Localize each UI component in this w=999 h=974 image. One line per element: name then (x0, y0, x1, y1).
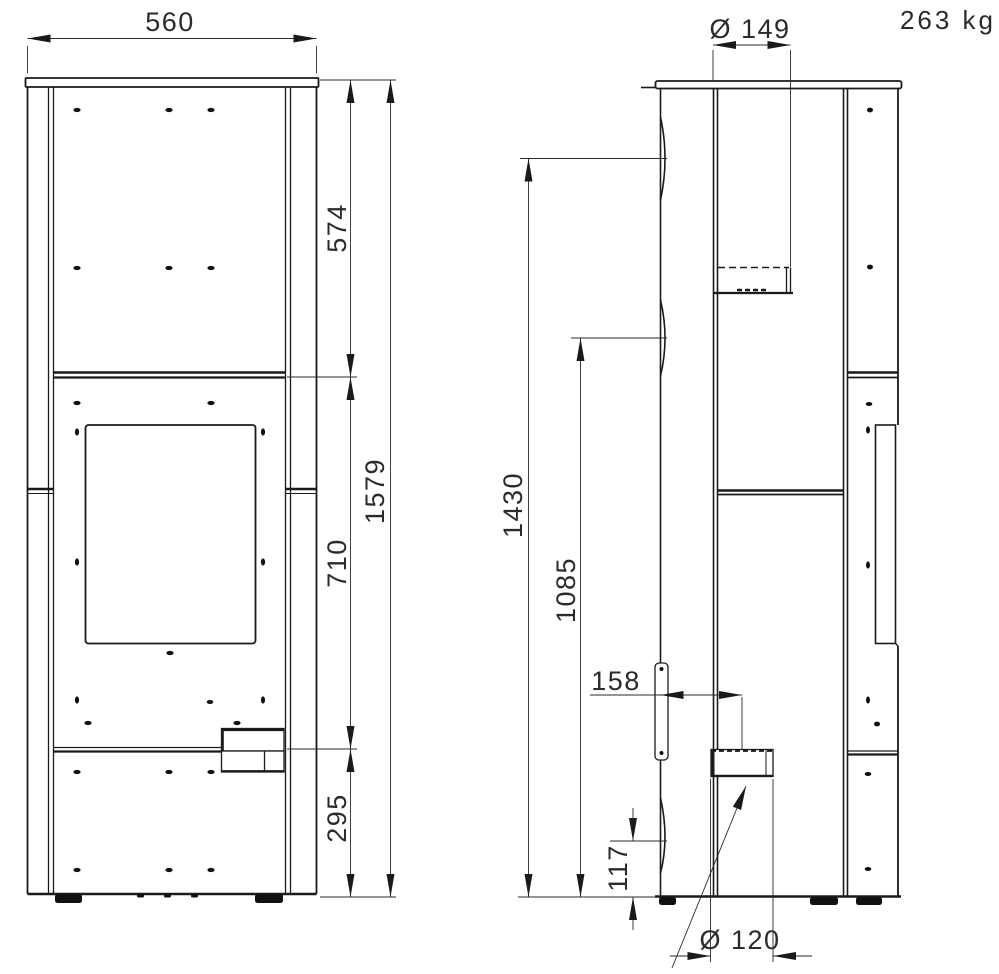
air-inlet-spigot (711, 750, 773, 777)
dim-air-inlet-height-117: 117 (603, 808, 667, 930)
front-top-plate (26, 78, 319, 87)
dim-flue-diameter-149: Ø 149 (709, 14, 790, 267)
side-top-plate (641, 81, 902, 89)
dim-label-574: 574 (322, 203, 352, 253)
weight-label: 263 kg (900, 5, 996, 35)
rear-heat-shield (655, 89, 668, 897)
side-door-edge (848, 89, 899, 897)
dim-label-flue-diameter: Ø 149 (709, 14, 790, 44)
rear-flue-outlet (714, 268, 794, 294)
dim-label-1579: 1579 (360, 458, 390, 524)
dim-label-560: 560 (145, 7, 195, 37)
dim-label-117: 117 (603, 844, 633, 892)
dim-label-120: Ø 120 (699, 925, 780, 955)
dim-air-inlet-diameter-120: Ø 120 (670, 779, 812, 968)
ash-drawer (222, 729, 285, 773)
rear-vent-slot (655, 663, 668, 760)
dim-label-295: 295 (322, 793, 352, 843)
dim-rear-heights: 1430 1085 (498, 159, 667, 898)
front-feet (55, 894, 283, 903)
dim-label-1430: 1430 (498, 472, 528, 538)
front-body-dividers (28, 373, 317, 895)
door-window (86, 425, 256, 644)
dim-label-1085: 1085 (551, 557, 581, 623)
dim-label-710: 710 (322, 538, 352, 588)
dim-width-560: 560 (28, 7, 317, 73)
front-view (26, 78, 319, 903)
side-view (641, 81, 902, 905)
side-floor-and-feet (655, 897, 901, 906)
stove-technical-drawing: 560 574 710 295 1579 Ø 149 (0, 0, 999, 974)
dim-label-158: 158 (591, 666, 641, 696)
